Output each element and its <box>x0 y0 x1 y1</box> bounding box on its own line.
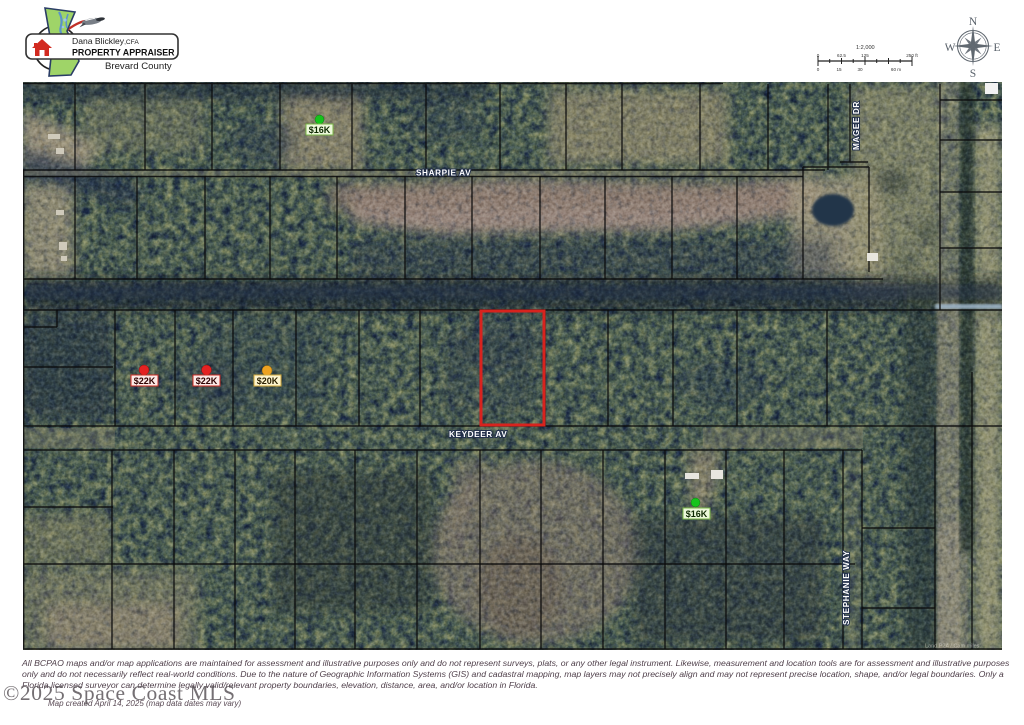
svg-text:$16K: $16K <box>309 125 331 135</box>
svg-text:MAGEE DR: MAGEE DR <box>852 101 861 150</box>
svg-text:KEYDEER AV: KEYDEER AV <box>449 430 507 439</box>
svg-text:15: 15 <box>836 67 842 72</box>
svg-text:PROPERTY APPRAISER: PROPERTY APPRAISER <box>72 48 175 58</box>
svg-text:STEPHANIE WAY: STEPHANIE WAY <box>842 550 851 625</box>
svg-text:$22K: $22K <box>134 376 156 386</box>
svg-text:0: 0 <box>817 53 820 58</box>
svg-text:Land P2A / Cam miles: Land P2A / Cam miles <box>925 644 980 650</box>
svg-text:$20K: $20K <box>257 376 279 386</box>
svg-text:Brevard County: Brevard County <box>105 61 172 72</box>
svg-text:250 ft: 250 ft <box>906 53 918 58</box>
svg-text:$22K: $22K <box>196 376 218 386</box>
svg-text:E: E <box>993 42 1000 54</box>
svg-text:62.5: 62.5 <box>837 53 846 58</box>
svg-text:30: 30 <box>857 67 863 72</box>
svg-text:125: 125 <box>861 53 869 58</box>
svg-text:1:2,000: 1:2,000 <box>856 45 875 51</box>
svg-text:N: N <box>969 16 978 28</box>
svg-text:S: S <box>970 68 976 80</box>
svg-text:$16K: $16K <box>686 509 708 519</box>
svg-text:W: W <box>945 42 956 54</box>
svg-text:0: 0 <box>817 67 820 72</box>
svg-text:60 m: 60 m <box>891 67 901 72</box>
svg-text:SHARPIE AV: SHARPIE AV <box>416 169 471 178</box>
